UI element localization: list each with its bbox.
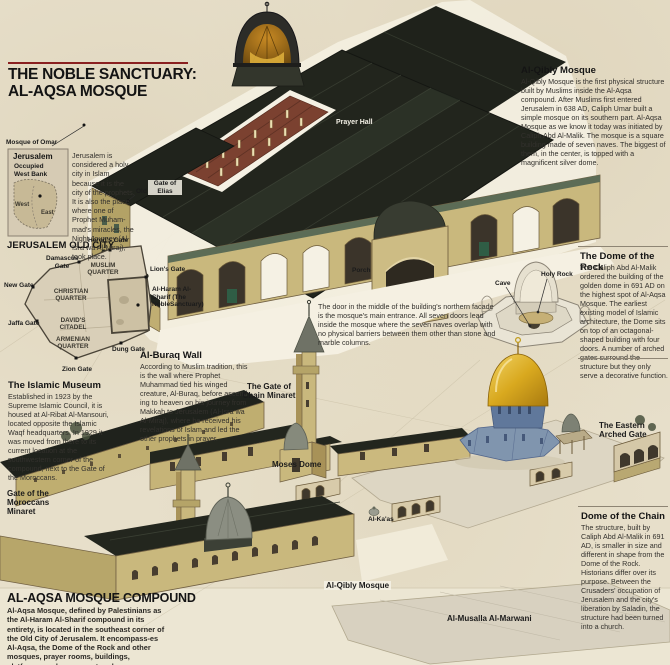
dor-rule-top xyxy=(578,246,668,247)
haram-compound-shape xyxy=(108,277,149,333)
porch-label: Porch xyxy=(352,267,370,275)
dome-of-the-rock-shape xyxy=(455,338,565,470)
al-qibly-body: Al-Qibly Mosque is the first physical st… xyxy=(521,77,669,167)
eastern-gate-shape xyxy=(614,432,660,482)
title-accent-rule xyxy=(8,62,188,64)
gate-label-lions: Lion's Gate xyxy=(150,266,185,274)
quarter-label-davids: DAVID'S CITADEL xyxy=(52,317,94,331)
moses-dome-label: Moses Dome xyxy=(272,460,321,469)
gate-of-elias-label: Gate of Elias xyxy=(148,180,182,195)
gate-label-new: New Gate xyxy=(4,282,34,290)
quarter-label-christian: CHRISTIAN QUARTER xyxy=(48,288,94,302)
inset-region-label: Occupied West Bank xyxy=(14,163,56,178)
gate-label-damascus: Damascus Gate xyxy=(46,255,78,270)
mosque-of-omar-label: Mosque of Omar xyxy=(6,139,58,147)
gate-label-jaffa: Jaffa Gate xyxy=(8,320,39,328)
infographic-poster: THE NOBLE SANCTUARY: AL-AQSA MOSQUE Mosq… xyxy=(0,0,670,665)
page-title-line1: THE NOBLE SANCTUARY: xyxy=(8,67,208,84)
cave-label: Cave xyxy=(495,280,511,288)
dome-of-chain-title: Dome of the Chain xyxy=(581,511,665,522)
holy-rock-shape xyxy=(519,312,553,324)
chain-minaret-label: The Gate of Chain Minaret xyxy=(240,382,298,400)
compound-body: Al-Aqsa Mosque, defined by Palestinians … xyxy=(7,606,165,665)
al-musalla-label: Al-Musalla Al-Marwani xyxy=(447,614,532,623)
compound-title: AL-AQSA MOSQUE COMPOUND xyxy=(7,591,196,605)
quarter-label-armenian: ARMENIAN QUARTER xyxy=(50,336,96,350)
gate-label-zion: Zion Gate xyxy=(62,366,92,374)
quarter-label-muslim: MUSLIM QUARTER xyxy=(82,262,124,276)
page-title-line2: AL-AQSA MOSQUE xyxy=(8,84,208,101)
al-qibly-bottom-label: Al-Qibly Mosque xyxy=(324,581,391,590)
inset-map-title: Jerusalem xyxy=(13,152,53,161)
prayer-hall-label: Prayer Hall xyxy=(336,119,373,126)
haram-label: Al-Haram Al-Sharif (The NobleSanctuary) xyxy=(152,286,200,309)
inset-west-label: West xyxy=(15,202,29,208)
page-title: THE NOBLE SANCTUARY: AL-AQSA MOSQUE xyxy=(8,67,208,100)
moroccans-minaret-label: Gate of the Moroccans Minaret xyxy=(7,489,65,516)
islamic-museum-title: The Islamic Museum xyxy=(8,380,101,391)
al-buraq-wall-title: Al-Buraq Wall xyxy=(140,350,202,361)
gate-label-herods: Herod's Gate xyxy=(88,237,128,245)
silver-dome-cutaway xyxy=(232,2,304,86)
al-kaas-label: Al-Ka'as xyxy=(368,516,394,524)
dome-of-rock-body: The Caliph Abd Al-Malik ordered the buil… xyxy=(580,263,669,380)
islamic-museum-body: Established in 1923 by the Supreme Islam… xyxy=(8,392,114,482)
dor-rule-bottom xyxy=(578,358,668,359)
inset-east-label: East xyxy=(41,210,54,216)
door-note: The door in the middle of the building's… xyxy=(318,302,496,347)
eastern-gate-label: The Eastern Arched Gate xyxy=(599,421,653,439)
holy-rock-label: Holy Rock xyxy=(541,271,573,279)
al-qibly-title: Al-Qibly Mosque xyxy=(521,65,596,76)
al-kaas-shape xyxy=(369,507,379,516)
al-buraq-wall-body: According to Muslim tradition, this is t… xyxy=(140,362,250,443)
doc-rule-top xyxy=(578,506,668,507)
dome-of-chain-body: The structure, built by Caliph Abd Al-Ma… xyxy=(581,523,670,631)
